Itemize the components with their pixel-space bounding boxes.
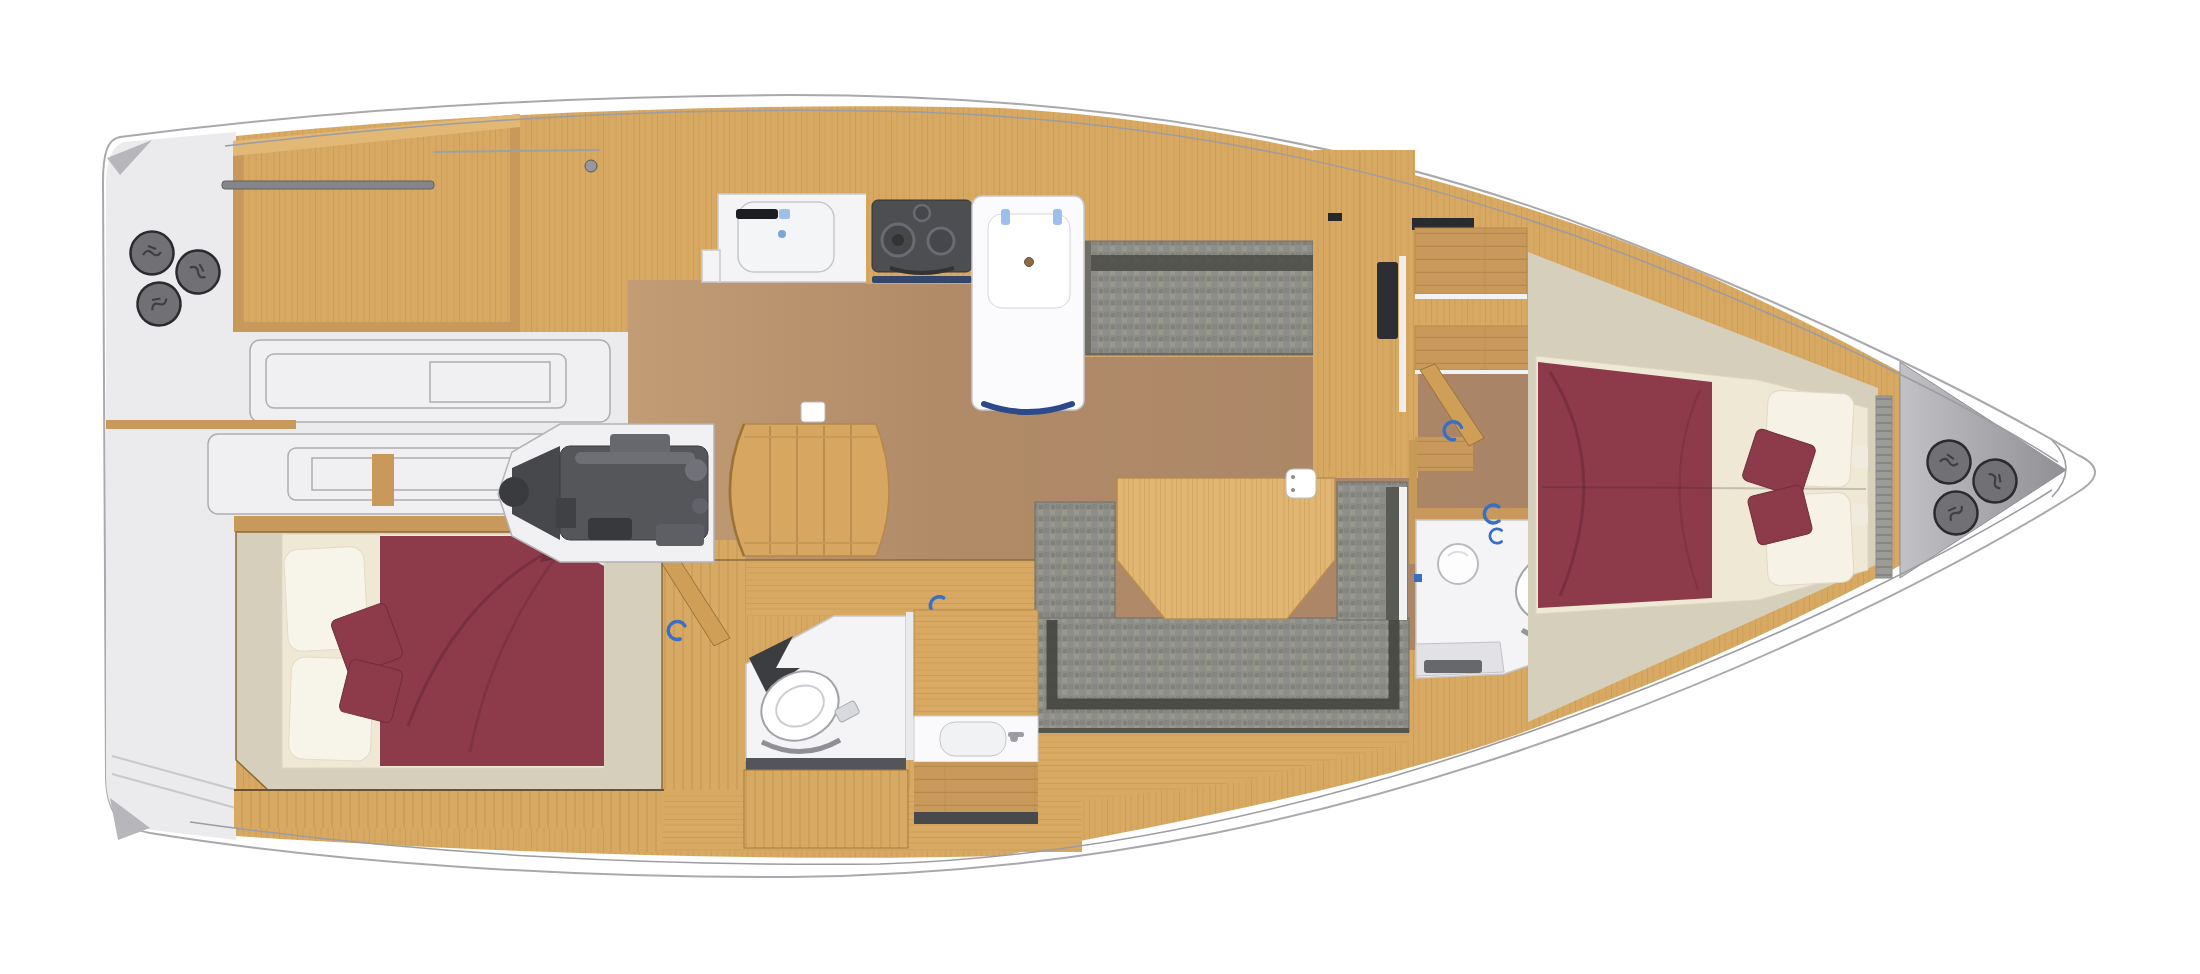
- aft-bed-spread: [380, 536, 604, 766]
- stove-icon: [872, 200, 972, 273]
- aft-cabin-foot-planks: [234, 790, 664, 828]
- aft-head-cabinet: [744, 770, 908, 848]
- drain-icon: [778, 230, 786, 238]
- step: [1415, 437, 1473, 471]
- vanity: [914, 610, 1038, 824]
- yacht-floorplan-canvas: Sailing yacht interior deck plan, top vi…: [0, 0, 2200, 974]
- traveler-track: [222, 181, 434, 189]
- hinge-icon: [1001, 209, 1010, 225]
- lid-knob-icon: [1025, 258, 1034, 267]
- shelf: [1415, 326, 1533, 370]
- stove-rail: [872, 276, 972, 283]
- deck-fitting-icon: [585, 160, 597, 172]
- tv-panel: [1377, 262, 1398, 339]
- walkway-wood-block: [372, 454, 394, 506]
- dinette-table: [1117, 478, 1335, 619]
- aft-cabin: [234, 516, 664, 828]
- fridge-unit: [972, 196, 1084, 412]
- floor-hatch: [801, 402, 825, 422]
- upper-settee: [1085, 241, 1313, 355]
- headboard-strip: [1876, 396, 1892, 578]
- walkway-wood-strip: [106, 420, 296, 429]
- round-basin-icon: [1438, 544, 1478, 584]
- engine-room: [498, 424, 714, 562]
- galley: [702, 192, 978, 284]
- shelf: [1415, 228, 1527, 294]
- dinette-sofa-bench: [1035, 618, 1409, 732]
- shower-mat: [1424, 660, 1482, 673]
- table-sink-box: [1286, 469, 1316, 498]
- vanity-faucet-icon: [1010, 734, 1018, 742]
- galley-faucet-icon: [736, 209, 778, 219]
- vanity-basin: [940, 722, 1006, 756]
- yacht-floorplan: Sailing yacht interior deck plan, top vi…: [0, 0, 2200, 974]
- dinette-sofa-left-arm: [1035, 502, 1115, 620]
- vanity-cabinet: [914, 762, 1038, 812]
- hinge-icon: [1053, 209, 1062, 225]
- companionway-steps: [729, 424, 889, 556]
- stern-winch-icon: [131, 232, 174, 275]
- door-track: [1399, 256, 1406, 412]
- latch-icon: [1414, 574, 1422, 582]
